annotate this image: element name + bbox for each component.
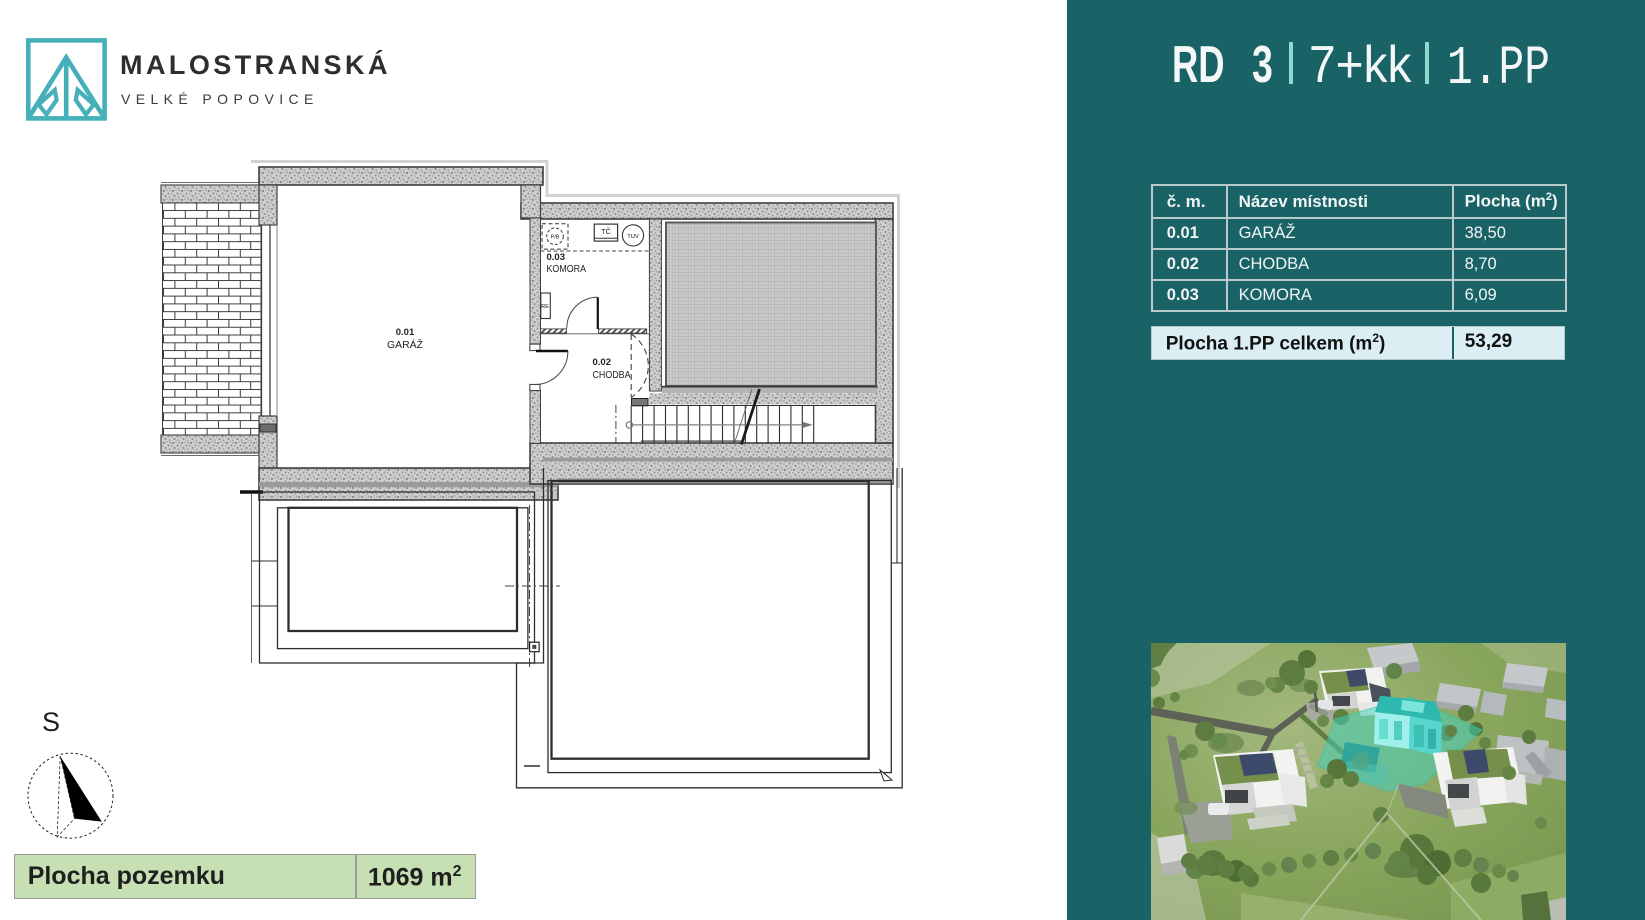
svg-text:0.01: 0.01 <box>396 327 415 338</box>
svg-text:KOMORA: KOMORA <box>547 263 587 275</box>
svg-text:0.02: 0.02 <box>593 357 612 368</box>
svg-text:TČ: TČ <box>601 227 610 236</box>
svg-text:P/B: P/B <box>551 235 560 241</box>
svg-text:GARÁŽ: GARÁŽ <box>387 338 424 351</box>
svg-text:0.03: 0.03 <box>547 252 566 263</box>
svg-text:RE: RE <box>541 304 549 310</box>
svg-text:TUV: TUV <box>627 234 639 240</box>
svg-text:S: S <box>42 707 60 737</box>
svg-text:CHODBA: CHODBA <box>593 369 631 381</box>
